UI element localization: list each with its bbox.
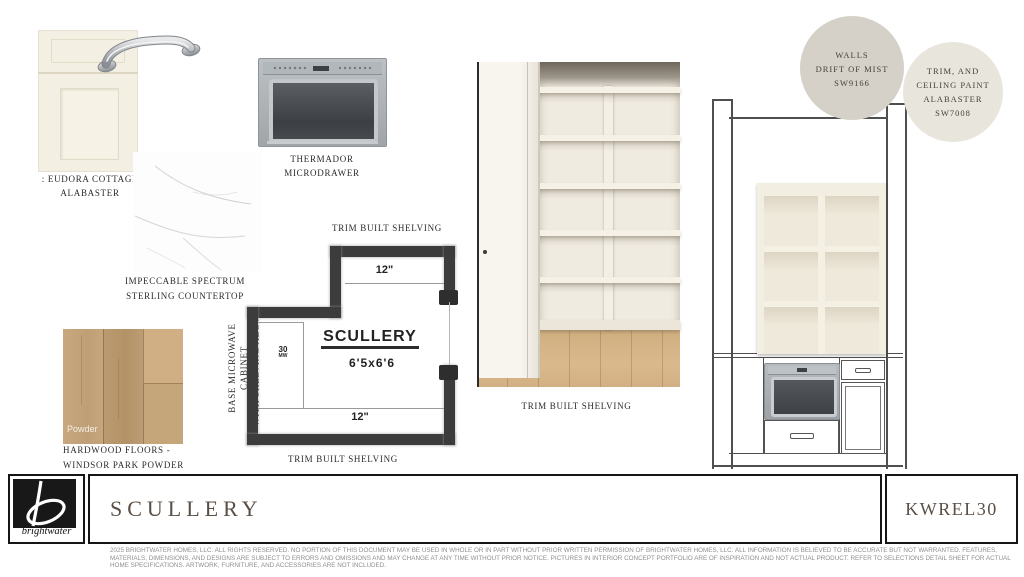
plan-shelf-line-bottom <box>258 408 444 409</box>
marble-veins <box>133 152 262 272</box>
cabinet-elevation-small-drawer <box>841 360 885 380</box>
disclaimer-text: 2025 BRIGHTWATER HOMES, LLC. ALL RIGHTS … <box>110 547 1010 570</box>
brightwater-logo: brightwater <box>8 474 85 544</box>
wood-watermark: Powder <box>67 424 98 434</box>
brightwater-wordmark: brightwater <box>10 526 83 537</box>
cabinet-elevation-left-panel <box>712 99 733 469</box>
cabinet-elevation-door <box>841 382 885 454</box>
brightwater-logo-icon <box>13 479 76 528</box>
plan-microwave-cabinet-line <box>258 322 303 323</box>
drawer-handle <box>855 368 871 373</box>
plan-door-jamb <box>439 365 458 380</box>
trim-built-shelving-photo <box>477 62 680 387</box>
cabinet-elevation-shelf-inset <box>757 183 886 354</box>
plan-microwave-note: 30 MW <box>272 346 294 360</box>
plan-shelf-line-top <box>345 283 444 284</box>
plan-room-dims: 6'5x6'6 <box>307 356 437 370</box>
plan-microwave-cabinet-line <box>303 322 304 408</box>
plan-door-leaf <box>449 302 450 365</box>
photo-shelving <box>538 62 680 330</box>
microdrawer-buttons <box>273 66 307 70</box>
countertop-label: IMPECCABLE SPECTRUM STERLING COUNTERTOP <box>113 274 257 303</box>
paint-swatch-walls: WALLS DRIFT OF MIST SW9166 <box>800 16 904 120</box>
plan-bottom-label: TRIM BUILT SHELVING <box>243 454 443 464</box>
microdrawer-window <box>269 79 378 143</box>
sheet-code-box: KWREL30 <box>885 474 1018 544</box>
drawer-handle <box>790 433 814 439</box>
cabinet-elevation-drawer <box>764 420 839 454</box>
microdrawer-buttons <box>338 66 372 70</box>
scullery-floor-plan: SCULLERY 6'5x6'6 12" 12" 30 MW <box>247 246 455 445</box>
plan-wall-top <box>330 246 455 257</box>
plan-wall-bottom <box>247 434 455 445</box>
plan-dimension-top: 12" <box>335 264 434 276</box>
paint-swatch-trim-ceiling: TRIM, AND CEILING PAINT ALABASTER SW7008 <box>903 42 1003 142</box>
cabinet-elevation-counter-line <box>712 357 903 358</box>
design-concept-board: : EUDORA COTTAGE ALABASTER THERMADOR MIC… <box>0 0 1024 577</box>
photo-label: TRIM BUILT SHELVING <box>475 400 678 414</box>
sheet-title-box: SCULLERY <box>88 474 882 544</box>
cabinet-elevation-right-panel <box>886 103 907 469</box>
microdrawer-label: THERMADOR MICRODRAWER <box>252 153 392 180</box>
microdrawer-display <box>313 66 329 71</box>
wood-plank <box>103 329 144 444</box>
wood-plank <box>143 329 183 444</box>
door-knob <box>483 250 487 254</box>
cabinet-recessed-panel <box>60 88 119 160</box>
hardwood-sample-image: Powder <box>63 329 182 444</box>
microdrawer-base <box>267 141 378 144</box>
cabinet-elevation-microwave <box>764 363 840 420</box>
cabinet-handle-icon <box>93 28 205 76</box>
countertop-sample-image <box>133 152 262 272</box>
microdrawer-image <box>258 58 387 147</box>
plan-top-label: TRIM BUILT SHELVING <box>287 223 487 233</box>
plan-wall-left <box>247 307 258 445</box>
sheet-code: KWREL30 <box>905 499 997 520</box>
sheet-title: SCULLERY <box>90 496 262 522</box>
plan-room-name: SCULLERY <box>305 328 435 346</box>
plan-dimension-bottom: 12" <box>267 411 453 423</box>
hardwood-label: HARDWOOD FLOORS - WINDSOR PARK POWDER <box>63 443 213 472</box>
plan-wall-notch-horizontal <box>247 307 341 318</box>
cabinet-elevation-bottom-line <box>712 465 903 467</box>
photo-door <box>479 62 540 378</box>
